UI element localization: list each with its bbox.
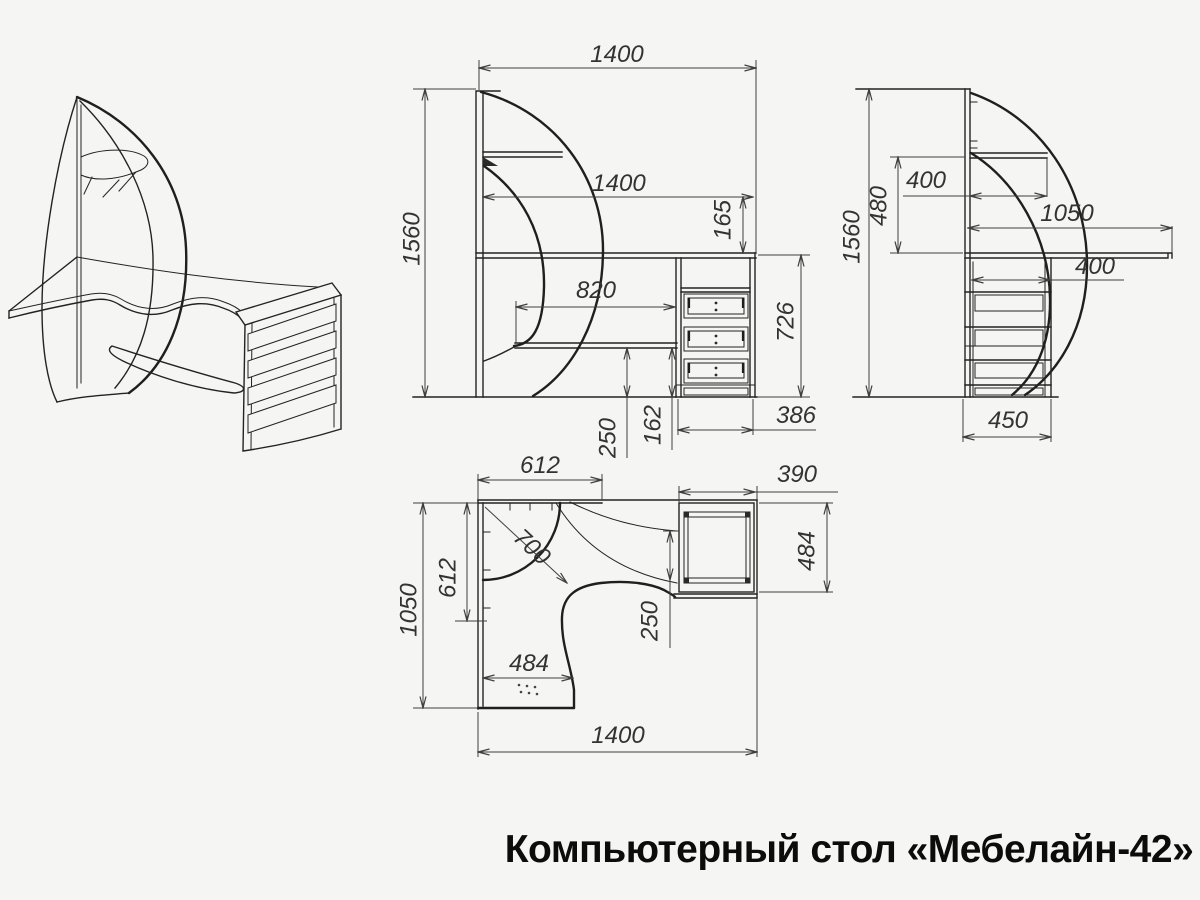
dim-front-back-rail: 165 bbox=[709, 199, 736, 240]
front-sail-inner-arc bbox=[484, 166, 544, 346]
plan-curve-upper bbox=[570, 502, 677, 531]
product-title: Компьютерный стол «Мебелайн-42» bbox=[505, 828, 1194, 871]
side-drawer-box-2 bbox=[975, 330, 1043, 346]
dim-plan-edge-offset: 250 bbox=[636, 600, 663, 642]
dim-front-plinth: 162 bbox=[639, 405, 666, 445]
iso-sail-outer-edge bbox=[77, 97, 186, 393]
dim-front-keyboard-width: 820 bbox=[576, 277, 617, 304]
dim-plan-overall-depth: 1050 bbox=[395, 583, 422, 637]
plan-pedestal-outer bbox=[679, 503, 754, 592]
side-desktop bbox=[965, 253, 1172, 258]
iso-sail-left-edge bbox=[42, 97, 77, 402]
front-plinth bbox=[677, 385, 755, 395]
front-view: 1400 1400 165 1560 820 726 250 162 386 bbox=[398, 41, 816, 459]
front-geometry bbox=[413, 91, 757, 397]
side-drawer-dividers bbox=[965, 292, 1051, 385]
dim-front-shelf-to-floor: 250 bbox=[594, 417, 621, 459]
iso-corner-edge bbox=[77, 99, 81, 388]
plan-curve-lower bbox=[556, 503, 677, 583]
iso-corner-shelf bbox=[81, 150, 148, 179]
plan-pedestal-corner-marks bbox=[684, 512, 750, 583]
iso-keyboard-shelf bbox=[109, 346, 243, 393]
dim-plan-front-width: 484 bbox=[509, 650, 549, 677]
front-keyboard-shelf bbox=[515, 343, 677, 348]
plan-front-notch bbox=[562, 582, 675, 708]
front-corner-shelf bbox=[483, 152, 562, 157]
plan-pedestal-slats bbox=[684, 512, 750, 583]
dim-front-pedestal-width: 386 bbox=[776, 402, 817, 429]
front-shelf-bracket bbox=[483, 157, 498, 166]
plan-pedestal-inner bbox=[684, 512, 750, 583]
front-sail-outer-arc bbox=[481, 92, 603, 396]
side-sail-inner-arc bbox=[971, 153, 1050, 395]
side-drawer-box-1 bbox=[975, 295, 1043, 311]
side-panel-edge bbox=[965, 89, 970, 397]
front-desktop bbox=[476, 253, 756, 258]
side-geometry bbox=[853, 89, 1172, 397]
dim-front-desktop-width: 1400 bbox=[592, 170, 646, 197]
plan-left-edge bbox=[478, 500, 483, 709]
front-pedestal-rail bbox=[681, 288, 750, 292]
side-corner-shelf bbox=[970, 153, 1047, 158]
front-right-edge bbox=[750, 253, 755, 397]
plan-view: 612 390 612 1050 700 484 250 484 1400 bbox=[395, 452, 838, 757]
front-drawer-1 bbox=[684, 294, 748, 318]
dim-side-shelf-above-desktop: 480 bbox=[865, 185, 892, 226]
plan-pedestal-bottom-edge bbox=[674, 594, 757, 598]
front-drawer-3 bbox=[684, 359, 748, 383]
iso-shelf-supports bbox=[84, 172, 136, 197]
isometric-view bbox=[9, 97, 341, 451]
iso-desktop-back-edge bbox=[77, 257, 318, 287]
dim-plan-pedestal-width: 390 bbox=[777, 461, 818, 488]
dim-front-desktop-height: 726 bbox=[772, 301, 799, 342]
dim-side-pedestal-depth: 450 bbox=[988, 407, 1029, 434]
dim-plan-corner-leader: 700 bbox=[508, 524, 556, 572]
dim-plan-back-section: 612 bbox=[520, 452, 560, 479]
plan-dimensions: 612 390 612 1050 700 484 250 484 1400 bbox=[395, 452, 838, 757]
dim-side-desktop-depth: 1050 bbox=[1040, 200, 1094, 227]
side-view: 1560 480 400 1050 400 450 bbox=[838, 89, 1172, 442]
dim-side-overall-height: 1560 bbox=[838, 210, 865, 264]
dim-side-keyboard-depth: 400 bbox=[1075, 253, 1116, 280]
dim-plan-overall-width: 1400 bbox=[591, 722, 645, 749]
front-sail-lower-arc bbox=[484, 347, 514, 361]
blueprint-page: 1400 1400 165 1560 820 726 250 162 386 bbox=[0, 0, 1200, 900]
dim-plan-left-section: 612 bbox=[434, 558, 461, 598]
side-dimensions: 1560 480 400 1050 400 450 bbox=[838, 89, 1172, 442]
side-panel-ticks bbox=[970, 102, 977, 148]
front-drawer-2 bbox=[684, 327, 748, 351]
front-side-panel bbox=[476, 91, 500, 397]
dim-plan-pedestal-depth: 484 bbox=[793, 531, 820, 571]
dim-front-overall-width: 1400 bbox=[590, 41, 644, 68]
iso-sail-bottom-edge bbox=[57, 393, 129, 402]
iso-desktop-front-edge bbox=[9, 299, 242, 319]
dim-front-overall-height: 1560 bbox=[398, 212, 425, 266]
dim-side-corner-shelf-depth: 400 bbox=[906, 167, 947, 194]
blueprint-canvas: 1400 1400 165 1560 820 726 250 162 386 bbox=[0, 0, 1200, 900]
side-sail-outer-arc bbox=[971, 93, 1087, 395]
plan-dot-marks bbox=[518, 684, 539, 696]
front-pedestal-left bbox=[676, 258, 681, 397]
